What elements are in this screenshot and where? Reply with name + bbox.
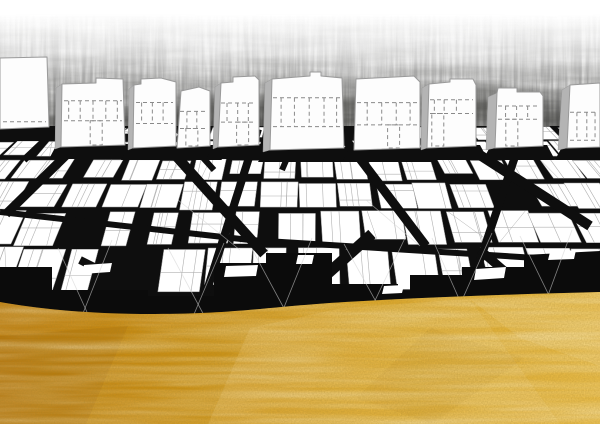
urban-collage-illustration xyxy=(0,0,600,424)
scene-canvas xyxy=(0,0,600,424)
